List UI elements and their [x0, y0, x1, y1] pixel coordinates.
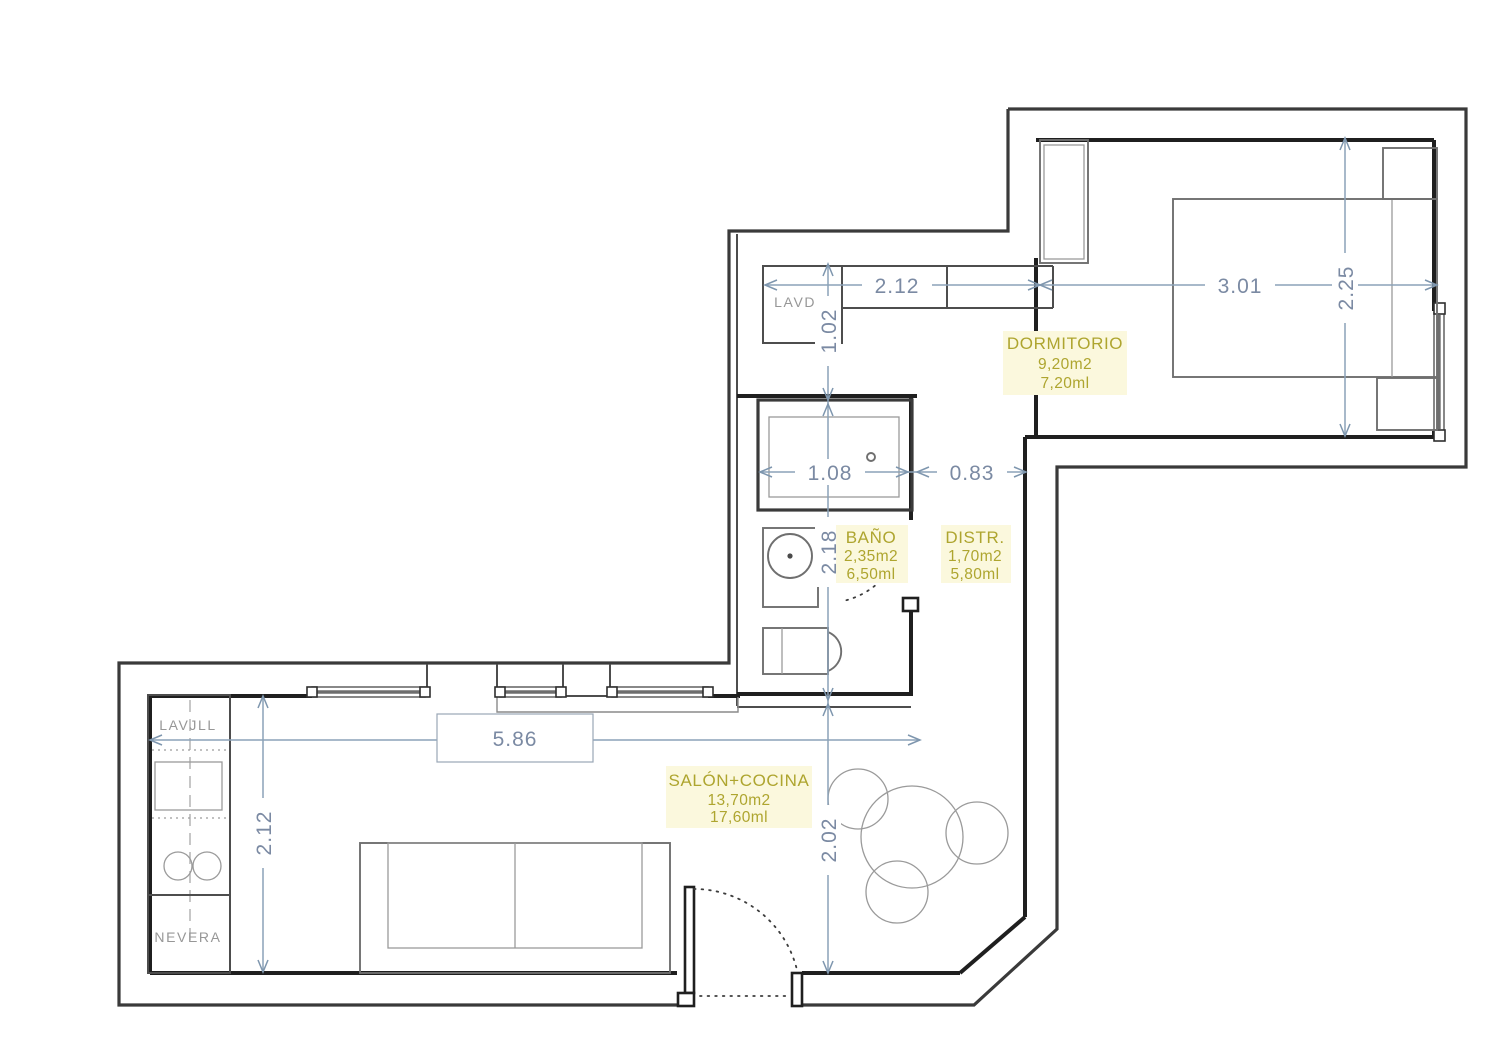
wardrobe-inner-line	[1044, 145, 1084, 259]
dim-laundry-depth: 1.02	[818, 309, 841, 354]
wardrobe	[1040, 140, 1088, 263]
room-label-dormitorio: DORMITORIO 9,20m2 7,20ml	[1003, 331, 1127, 395]
shower-drain	[867, 453, 875, 461]
room-name: DORMITORIO	[1007, 334, 1123, 353]
window-end-square	[703, 687, 713, 697]
cooktop-burner-right	[193, 852, 221, 880]
floor-plan-canvas: LAVDR LAVJLL NEVERA	[0, 0, 1500, 1042]
dim-salon-depth: 2.02	[818, 818, 841, 863]
salon-window-2	[495, 687, 566, 697]
entry-door-threshold	[678, 993, 694, 1006]
toilet-bowl	[828, 632, 841, 671]
kitchen-sink	[155, 762, 222, 810]
entry-door-stop	[792, 973, 802, 1006]
window-end-square	[556, 687, 566, 697]
room-area: 1,70m2	[948, 548, 1002, 565]
dim-distributor-width: 0.83	[950, 462, 995, 485]
room-perimeter: 5,80ml	[951, 566, 1000, 583]
chair-bottom	[866, 861, 928, 923]
floor-plan-drawing: LAVDR LAVJLL NEVERA	[0, 0, 1500, 1042]
entry-door-leaf	[685, 887, 694, 993]
room-area: 13,70m2	[707, 792, 770, 809]
dim-bedroom-width: 3.01	[1218, 275, 1263, 298]
sink-drain-dot	[787, 553, 792, 558]
room-area: 2,35m2	[844, 548, 898, 565]
nightstand-top	[1383, 148, 1437, 199]
room-name: BAÑO	[846, 528, 897, 547]
window-end-square	[420, 687, 430, 697]
dimension-arrows	[150, 138, 1437, 973]
room-label-salon-cocina: SALÓN+COCINA 13,70m2 17,60ml	[666, 766, 812, 828]
dim-corridor-width: 2.12	[875, 275, 920, 298]
toilet-tank	[763, 628, 828, 674]
room-label-bano: BAÑO 2,35m2 6,50ml	[836, 525, 908, 583]
entry-door	[678, 887, 802, 1006]
windows	[307, 303, 1445, 697]
dimension-lines: 2.12 3.01 1.02 2.18 2.02 1.08 0.83 5.86	[150, 138, 1437, 973]
salon-top-ledge	[497, 697, 738, 712]
room-perimeter: 17,60ml	[710, 809, 768, 826]
dim-shower-width: 1.08	[808, 462, 853, 485]
dishwasher-label: LAVJLL	[159, 717, 217, 733]
dim-bedroom-depth: 2.25	[1335, 266, 1358, 311]
room-name: DISTR.	[945, 528, 1004, 547]
salon-window-1	[307, 687, 430, 697]
chamfer-inner-wall	[960, 917, 1025, 973]
salon-window-3	[607, 687, 713, 697]
bathroom-door-jamb	[903, 598, 918, 611]
window-end-square	[1434, 430, 1445, 441]
nightstand-bottom	[1377, 378, 1437, 430]
dim-kitchen-depth: 2.12	[253, 811, 276, 856]
room-perimeter: 6,50ml	[847, 566, 896, 583]
room-label-distribuidor: DISTR. 1,70m2 5,80ml	[941, 525, 1011, 583]
bedroom-window	[1434, 303, 1445, 441]
dining-table	[861, 786, 963, 888]
entry-door-swing-arc	[694, 889, 800, 995]
window-end-square	[307, 687, 317, 697]
room-name: SALÓN+COCINA	[669, 771, 810, 790]
window-end-square	[495, 687, 505, 697]
cooktop-burner-left	[164, 852, 192, 880]
room-perimeter: 7,20ml	[1041, 375, 1090, 392]
window-end-square	[607, 687, 617, 697]
chair-right	[946, 802, 1008, 864]
dim-salon-width: 5.86	[493, 728, 538, 751]
outer-walls	[119, 109, 1466, 1005]
window-end-square	[1434, 303, 1445, 314]
kitchen-strip: LAVJLL NEVERA	[148, 695, 230, 973]
room-area: 9,20m2	[1038, 356, 1092, 373]
fridge-label: NEVERA	[154, 929, 221, 945]
